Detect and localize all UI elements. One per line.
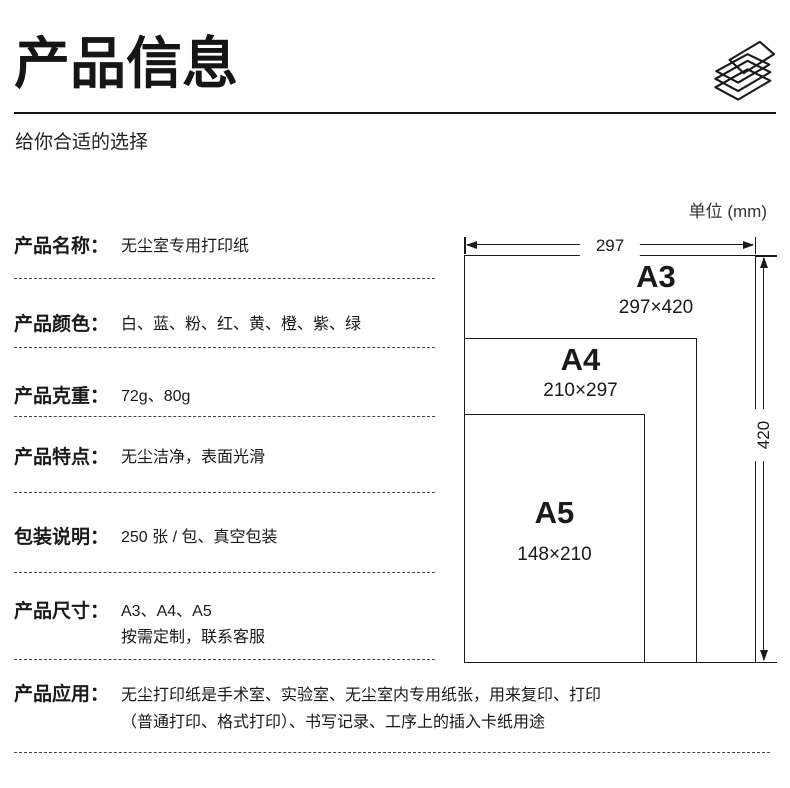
- page-title: 产品信息: [14, 33, 238, 95]
- spec-label: 产品克重：: [14, 384, 121, 410]
- spec-value-line1: A3、A4、A5: [121, 599, 265, 625]
- spec-row-size: 产品尺寸： A3、A4、A5 按需定制，联系客服: [14, 599, 265, 651]
- a3-size-name: A3: [557, 261, 755, 293]
- spec-row-name: 产品名称： 无尘室专用打印纸: [14, 234, 249, 260]
- spec-value: 无尘室专用打印纸: [121, 234, 249, 260]
- row-divider: [14, 347, 435, 348]
- row-divider: [14, 492, 435, 493]
- row-divider: [14, 278, 435, 279]
- spec-label: 产品应用：: [14, 682, 121, 708]
- page-subtitle: 给你合适的选择: [15, 127, 148, 154]
- row-divider: [14, 572, 435, 573]
- spec-value: 白、蓝、粉、红、黄、橙、紫、绿: [121, 312, 361, 338]
- spec-label: 产品特点：: [14, 445, 121, 471]
- spec-label: 产品颜色：: [14, 312, 121, 338]
- a4-size-dims: 210×297: [466, 381, 695, 401]
- width-dimension-arrow: 297: [464, 237, 756, 254]
- spec-row-weight: 产品克重： 72g、80g: [14, 384, 190, 410]
- spec-row-color: 产品颜色： 白、蓝、粉、红、黄、橙、紫、绿: [14, 312, 361, 338]
- arrowhead-up-icon: [760, 257, 768, 268]
- width-dimension-value: 297: [580, 236, 640, 256]
- spec-label: 包装说明：: [14, 525, 121, 551]
- a4-size-name: A4: [466, 344, 695, 376]
- a3-size-dims: 297×420: [557, 298, 755, 318]
- height-dimension-arrow: 420: [756, 255, 778, 663]
- spec-value-line1: 无尘打印纸是手术室、实验室、无尘室内专用纸张，用来复印、打印: [121, 682, 601, 709]
- unit-label: 单位 (mm): [689, 197, 767, 222]
- spec-label: 产品尺寸：: [14, 599, 121, 625]
- dimension-tick: [756, 662, 777, 664]
- paper-stack-icon: [704, 40, 776, 110]
- spec-value: 72g、80g: [121, 384, 190, 410]
- arrowhead-left-icon: [466, 241, 477, 249]
- a4-label: A4 210×297: [466, 344, 695, 401]
- spec-label: 产品名称：: [14, 234, 121, 260]
- row-divider: [14, 659, 435, 660]
- a5-size-name: A5: [466, 497, 643, 529]
- title-underline: [14, 112, 776, 114]
- a5-label: A5 148×210: [466, 497, 643, 565]
- row-divider: [14, 416, 435, 417]
- spec-value-line2: （普通打印、格式打印）、书写记录、工序上的插入卡纸用途: [121, 709, 601, 736]
- height-dimension-value: 420: [754, 409, 774, 461]
- spec-row-packing: 包装说明： 250 张 / 包、真空包装: [14, 525, 277, 551]
- spec-row-application: 产品应用： 无尘打印纸是手术室、实验室、无尘室内专用纸张，用来复印、打印 （普通…: [14, 682, 601, 736]
- a5-size-dims: 148×210: [466, 545, 643, 565]
- spec-row-feature: 产品特点： 无尘洁净，表面光滑: [14, 445, 265, 471]
- spec-value-line2: 按需定制，联系客服: [121, 625, 265, 651]
- arrowhead-right-icon: [743, 241, 754, 249]
- spec-value: 无尘打印纸是手术室、实验室、无尘室内专用纸张，用来复印、打印 （普通打印、格式打…: [121, 682, 601, 736]
- a3-label: A3 297×420: [557, 261, 755, 318]
- spec-value: A3、A4、A5 按需定制，联系客服: [121, 599, 265, 651]
- product-info-page: 产品信息 给你合适的选择 单位 (mm) 产品名称： 无尘室专用打印纸 产品颜色…: [0, 0, 790, 788]
- spec-value: 250 张 / 包、真空包装: [121, 525, 277, 551]
- spec-value: 无尘洁净，表面光滑: [121, 445, 265, 471]
- row-divider: [14, 752, 770, 753]
- arrowhead-down-icon: [760, 650, 768, 661]
- dimension-tick: [755, 237, 757, 254]
